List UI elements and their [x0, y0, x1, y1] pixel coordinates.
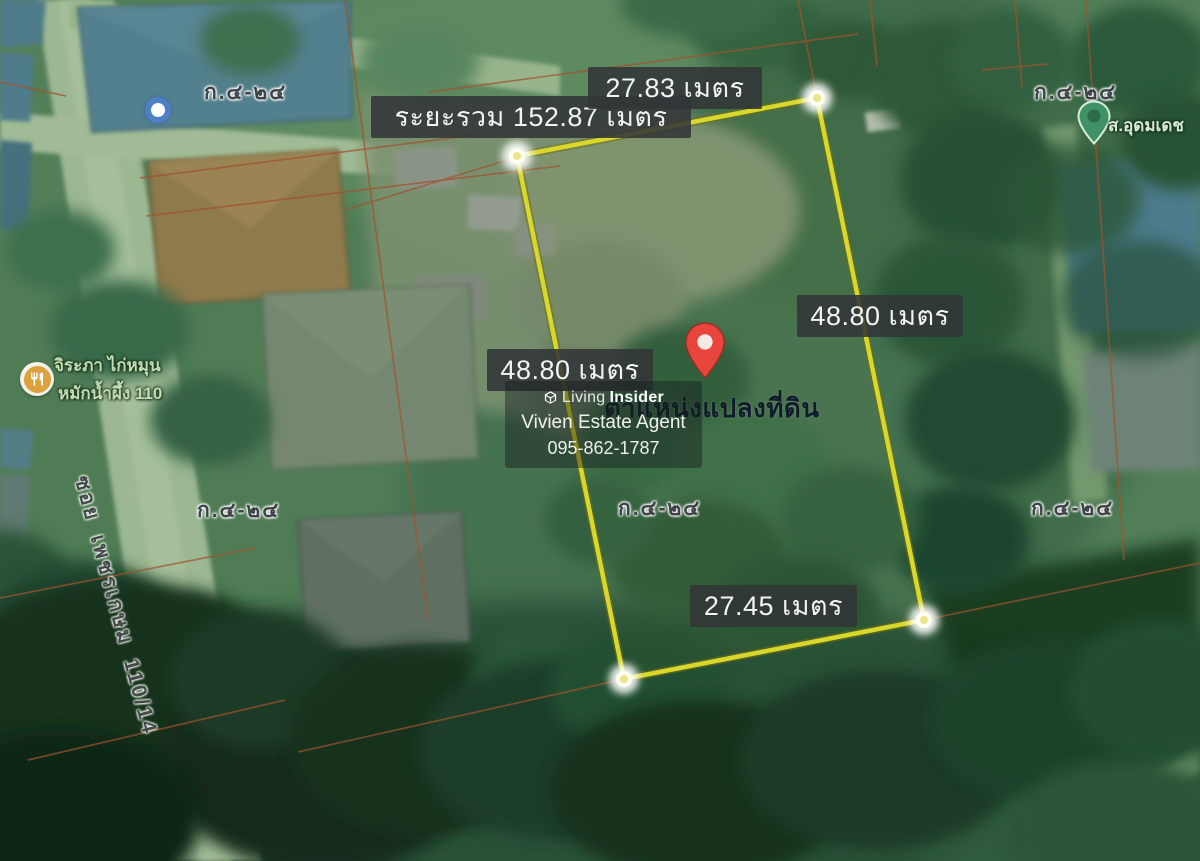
- measurement-label-right: 48.80 เมตร: [797, 295, 963, 337]
- watermark-brand: Living Insider: [543, 388, 664, 407]
- living-insider-logo-icon: [543, 390, 558, 405]
- parcel-code-label: ก.๔-๒๔: [197, 494, 280, 527]
- parcel-code-label: ก.๔-๒๔: [204, 76, 287, 109]
- location-pin-icon[interactable]: [682, 321, 728, 386]
- measurement-label-bottom: 27.45 เมตร: [690, 585, 857, 627]
- place-poi-name[interactable]: ส.อุดมเดช: [1108, 112, 1184, 139]
- watermark: Living Insider Vivien Estate Agent 095-8…: [505, 381, 702, 468]
- place-poi-icon[interactable]: [1076, 100, 1112, 151]
- location-dot-icon: [145, 97, 171, 123]
- restaurant-poi-name-line2[interactable]: หมักน้ำผึ้ง 110: [58, 380, 162, 407]
- watermark-brand-insider: Insider: [610, 389, 665, 407]
- parcel-code-label: ก.๔-๒๔: [1031, 492, 1114, 525]
- fork-knife-icon: [29, 371, 45, 387]
- watermark-agent-name: Vivien Estate Agent: [521, 412, 685, 434]
- land-plot-map-screenshot: ระยะรวม 152.87 เมตร 27.83 เมตร 48.80 เมต…: [0, 0, 1200, 861]
- restaurant-poi-name-line1[interactable]: จิระภา ไก่หมุน: [54, 352, 161, 379]
- parcel-code-label: ก.๔-๒๔: [618, 492, 701, 525]
- watermark-phone: 095-862-1787: [547, 438, 659, 459]
- watermark-brand-living: Living: [562, 389, 606, 407]
- measurement-label-top: 27.83 เมตร: [588, 67, 762, 109]
- location-dot-center: [151, 103, 165, 117]
- restaurant-poi-icon[interactable]: [20, 362, 54, 396]
